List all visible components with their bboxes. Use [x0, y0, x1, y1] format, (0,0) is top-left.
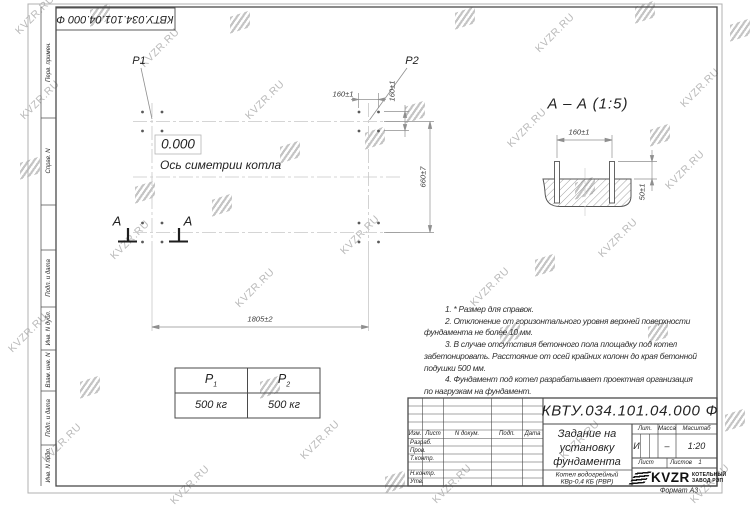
plan-dimensions [152, 93, 434, 329]
tb-col-list: Лист [425, 431, 440, 437]
tb-mass-label: Масса [658, 426, 676, 432]
tb-designation: КВТУ.034.101.04.000 Ф [542, 403, 719, 420]
tb-col-ndokum: N докум. [455, 431, 479, 437]
section-view-linework [543, 135, 657, 218]
dim-660: 660±7 [419, 166, 428, 187]
note-line: подушки 500 мм. [424, 363, 720, 375]
tb-col-izm: Изм. [409, 431, 422, 437]
tb-lit-value: И [633, 441, 639, 451]
section-letter-left: A [113, 214, 122, 229]
tb-sheets-label: Листов [670, 460, 692, 466]
section-dim-50: 50±1 [638, 184, 647, 201]
tb-row-utv: Утв. [410, 479, 424, 485]
kvzr-logo-text: KVZR [651, 470, 690, 485]
margin-label-podp-data-2: Подп. и дата [46, 399, 52, 437]
tb-sheets-value: 1 [698, 460, 701, 466]
kvzr-logo-sub2: ЗАВОД РЭП [692, 478, 723, 484]
tb-sheet-label: Лист [638, 460, 653, 466]
note-line: фундамента не более 10 мм. [424, 327, 720, 339]
level-mark-value: 0.000 [161, 137, 195, 152]
dim-160-vertical: 160±1 [388, 80, 397, 101]
drawing-sheet: KVZR.RUKVZR.RUKVZR.RUKVZR.RUKVZR.RUKVZR.… [0, 0, 750, 500]
dim-160-horizontal: 160±1 [332, 89, 353, 98]
load-point-p2-label: P2 [405, 55, 418, 67]
p1-sub: 1 [213, 381, 217, 388]
section-dim-160: 160±1 [568, 128, 589, 137]
margin-label-sprav-n: Справ. N [46, 148, 52, 173]
tb-scale-value: 1:20 [688, 441, 706, 451]
p2-sub: 2 [286, 381, 290, 388]
note-line: по нагрузкам на фундамент. [424, 386, 720, 398]
format-label: Формат А3 [660, 487, 698, 494]
note-line: 1. * Размер для справок. [424, 304, 720, 316]
tb-product-line2: КВр-0,4 КБ (РВР) [561, 479, 614, 486]
tb-row-prov: Пров. [410, 448, 426, 454]
tb-col-data: Дата [525, 431, 541, 437]
tb-row-razrab: Разраб. [410, 440, 432, 446]
tb-product-line1: Котел водогрейный [556, 472, 619, 479]
tb-scale-label: Масштаб [682, 426, 710, 432]
tb-row-nkontr: Н.контр. [410, 471, 435, 477]
load-point-leaders [141, 68, 407, 120]
note-line: 2. Отклонение от горизонтального уровня … [424, 316, 720, 328]
reversed-designation: КВТУ.034.101.04.000 Ф [56, 13, 173, 25]
frame-borders [28, 4, 722, 493]
notes-block: 1. * Размер для справок. 2. Отклонение о… [424, 304, 720, 398]
margin-label-inv-podl: Инв. N подл. [46, 447, 52, 482]
tb-mass-value: – [664, 441, 669, 451]
tb-row-tkontr: Т.контр. [410, 456, 434, 462]
boiler-axis-label: Ось симетрии котла [160, 158, 281, 172]
tb-title-line1: Задание на [558, 428, 617, 440]
section-cut-marks [118, 228, 188, 242]
section-letter-right: A [184, 214, 193, 229]
section-view-title: A – A (1:5) [547, 96, 628, 113]
tb-title-line3: фундамента [553, 456, 621, 468]
tb-col-podp: Подп. [499, 431, 515, 437]
tb-lit-label: Лит. [638, 426, 652, 432]
note-line: 3. В случае отсутствия бетонного пола пл… [424, 339, 720, 351]
load-point-p1-label: P1 [132, 55, 145, 67]
drawing-linework [0, 0, 750, 500]
load-table-header-p2: P2 [278, 372, 290, 389]
load-table-value-p1: 500 кг [195, 399, 227, 411]
margin-label-vzam-inv: Взам. инв. N [46, 353, 52, 388]
load-table-header-p1: P1 [205, 372, 217, 389]
dim-1805: 1805±2 [247, 315, 272, 324]
note-line: забетонировать. Расстояние от осей крайн… [424, 351, 720, 363]
tb-title-line2: установку [560, 442, 615, 454]
load-table-value-p2: 500 кг [268, 399, 300, 411]
margin-label-podp-data-1: Подп. и дата [46, 259, 52, 297]
note-line: 4. Фундамент под котел разрабатывает про… [424, 374, 720, 386]
margin-label-inv-dubl: Инв. N дубл. [46, 311, 52, 346]
margin-label-perv-primen: Перв. примен. [46, 42, 52, 82]
